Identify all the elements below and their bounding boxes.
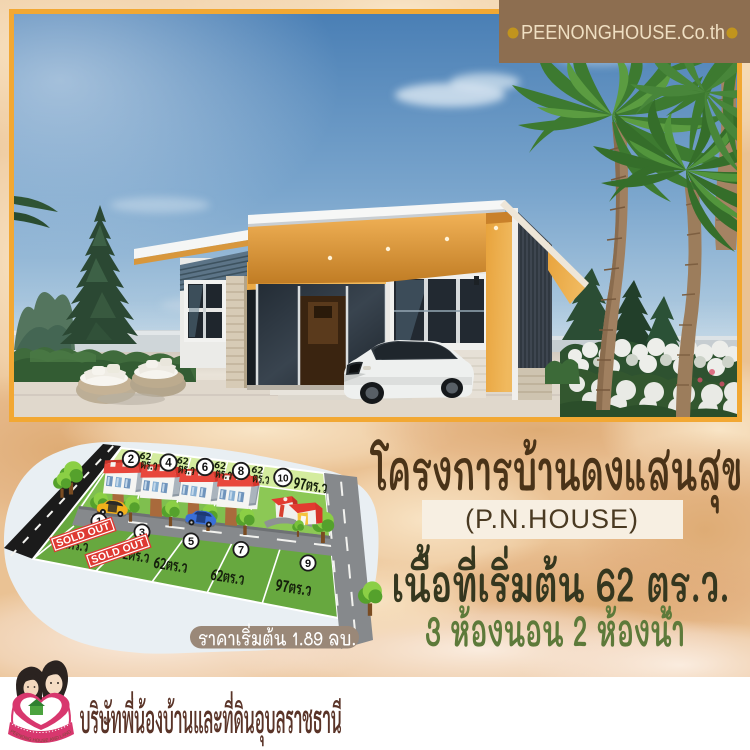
svg-text:PEENONG HOUSE AND LAND UBON: PEENONG HOUSE AND LAND UBON [0, 0, 73, 743]
